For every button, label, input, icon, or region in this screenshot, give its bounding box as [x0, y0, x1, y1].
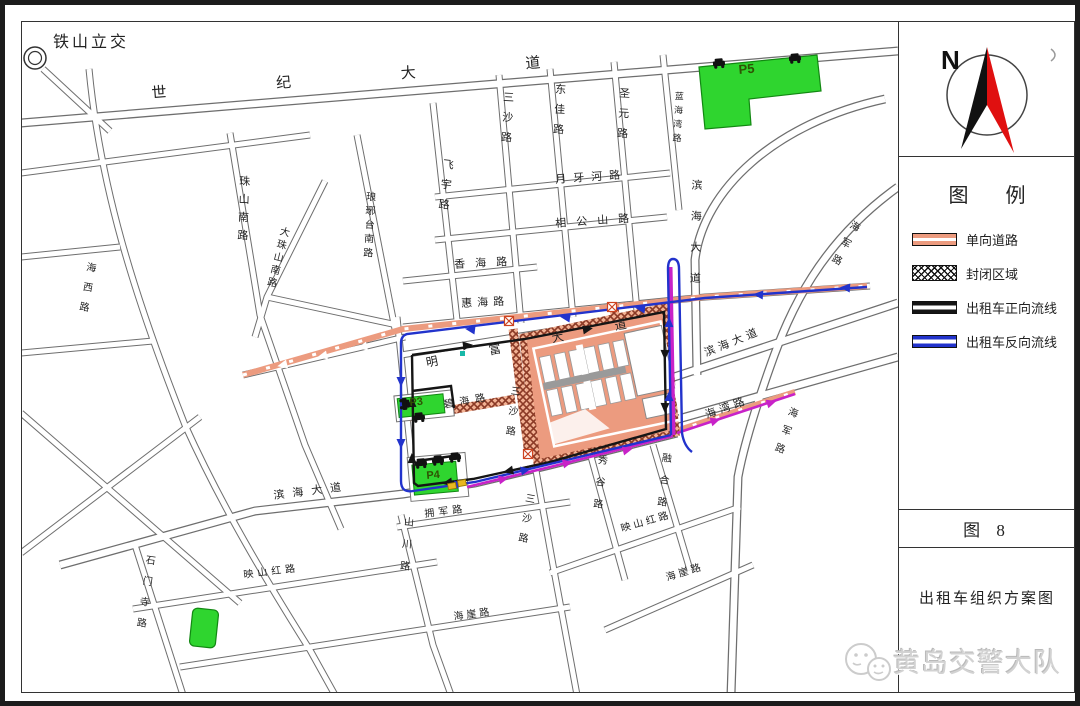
map-canvas	[21, 21, 898, 693]
legend-item-label: 单向道路	[966, 230, 1018, 249]
figure-title: 出租车组织方案图	[919, 587, 1055, 608]
compass-north-letter: N	[941, 45, 960, 75]
legend-item-label: 封闭区域	[966, 264, 1018, 283]
minor-road-casings	[21, 55, 870, 693]
legend-item-forward: 出租车正向流线	[912, 298, 1075, 316]
legend-item-label: 出租车正向流线	[966, 298, 1057, 317]
reverse-flow-swatch	[912, 335, 957, 348]
figure-number: 图 8	[963, 516, 1011, 541]
wechat-emoji-icon	[839, 639, 893, 687]
closed-area-swatch	[912, 265, 957, 281]
legend: 图 例 单向道路 封闭区域 出租车正向流线 出租车反向流线	[898, 157, 1075, 510]
compass-icon: N	[899, 21, 1074, 154]
oneway-road-swatch	[912, 233, 957, 246]
legend-item-closed: 封闭区域	[912, 264, 1075, 282]
watermark-text: 黄岛交警大队	[893, 641, 1061, 680]
legend-item-label: 出租车反向流线	[966, 332, 1057, 351]
interchange-icon	[24, 47, 46, 69]
legend-item-oneway: 单向道路	[912, 230, 1075, 248]
forward-flow-swatch	[912, 301, 957, 314]
compass-box: N	[898, 21, 1075, 157]
legend-title: 图 例	[899, 179, 1075, 208]
taxi-plan-map-page: P5 P3 P4 铁山立交世纪大道三沙路东佳路圣元路蓝海湾路飞宇路月牙河路相公山…	[0, 0, 1080, 706]
figure-number-box: 图 8	[898, 510, 1075, 548]
legend-item-reverse: 出租车反向流线	[912, 332, 1075, 350]
parking-area-southwest	[189, 608, 219, 649]
